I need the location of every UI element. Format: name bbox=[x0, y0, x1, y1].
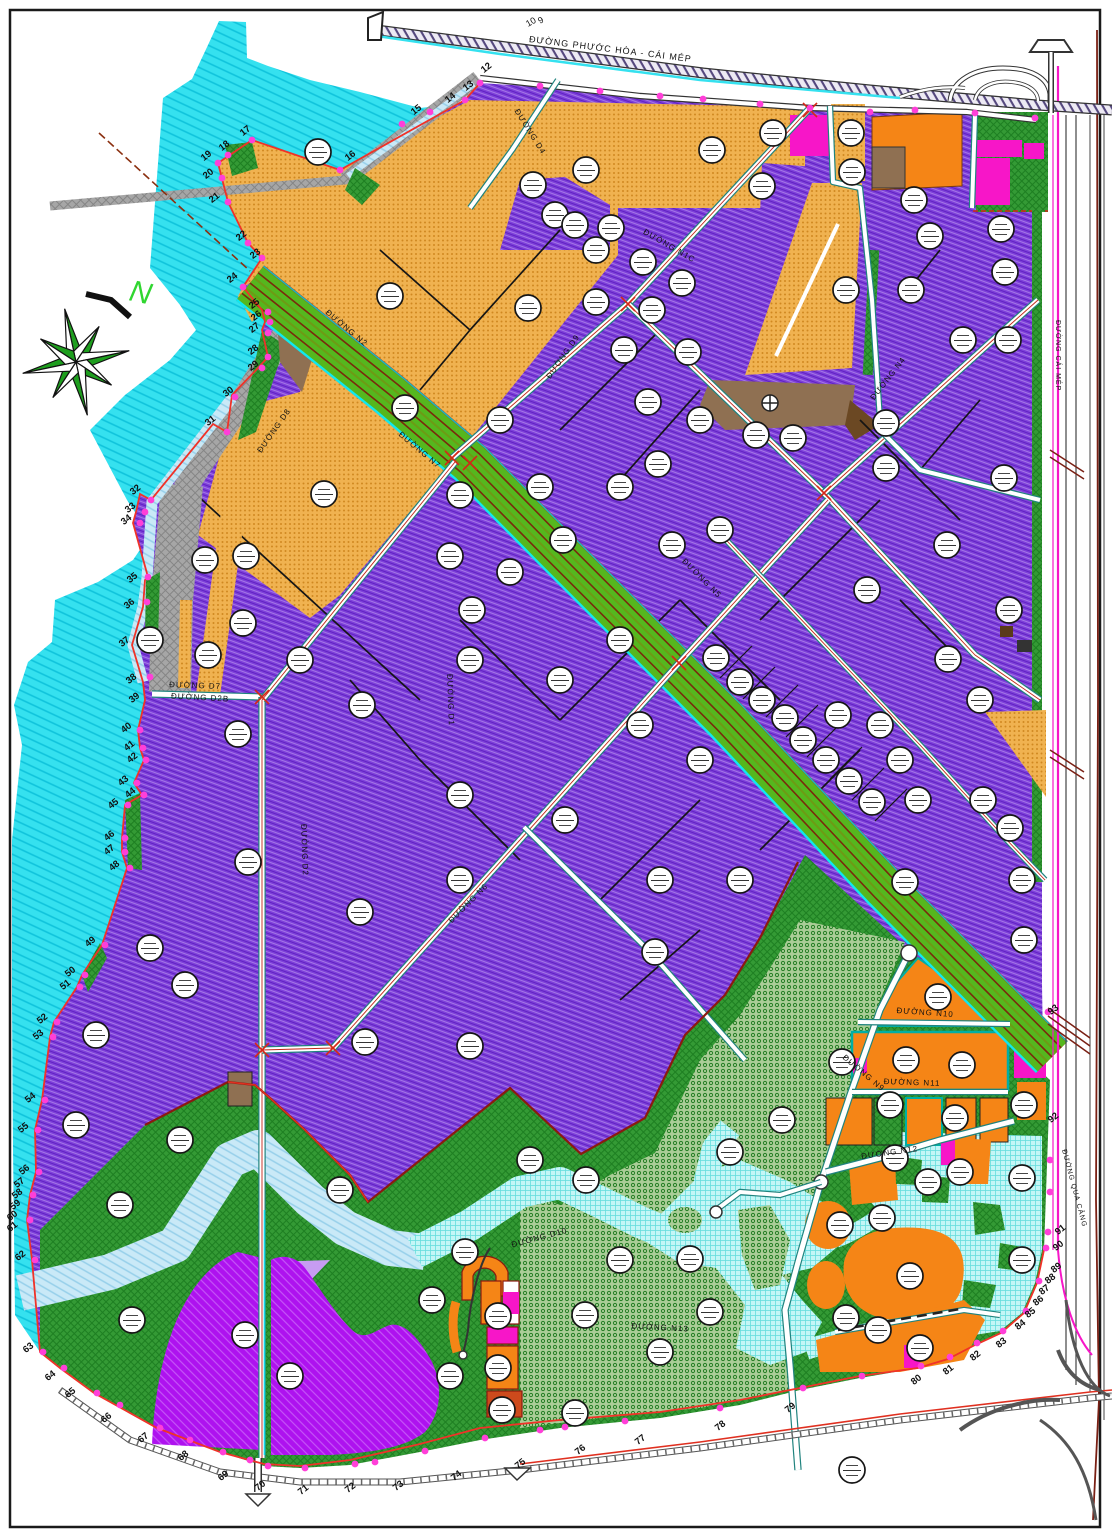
svg-text:ĐƯỜNG CÁI MÉP: ĐƯỜNG CÁI MÉP bbox=[1054, 320, 1063, 391]
svg-text:ĐƯỜNG D1: ĐƯỜNG D1 bbox=[445, 674, 456, 726]
svg-text:ĐƯỜNG D7: ĐƯỜNG D7 bbox=[169, 680, 221, 691]
svg-text:ĐƯỜNG D2: ĐƯỜNG D2 bbox=[299, 824, 310, 876]
